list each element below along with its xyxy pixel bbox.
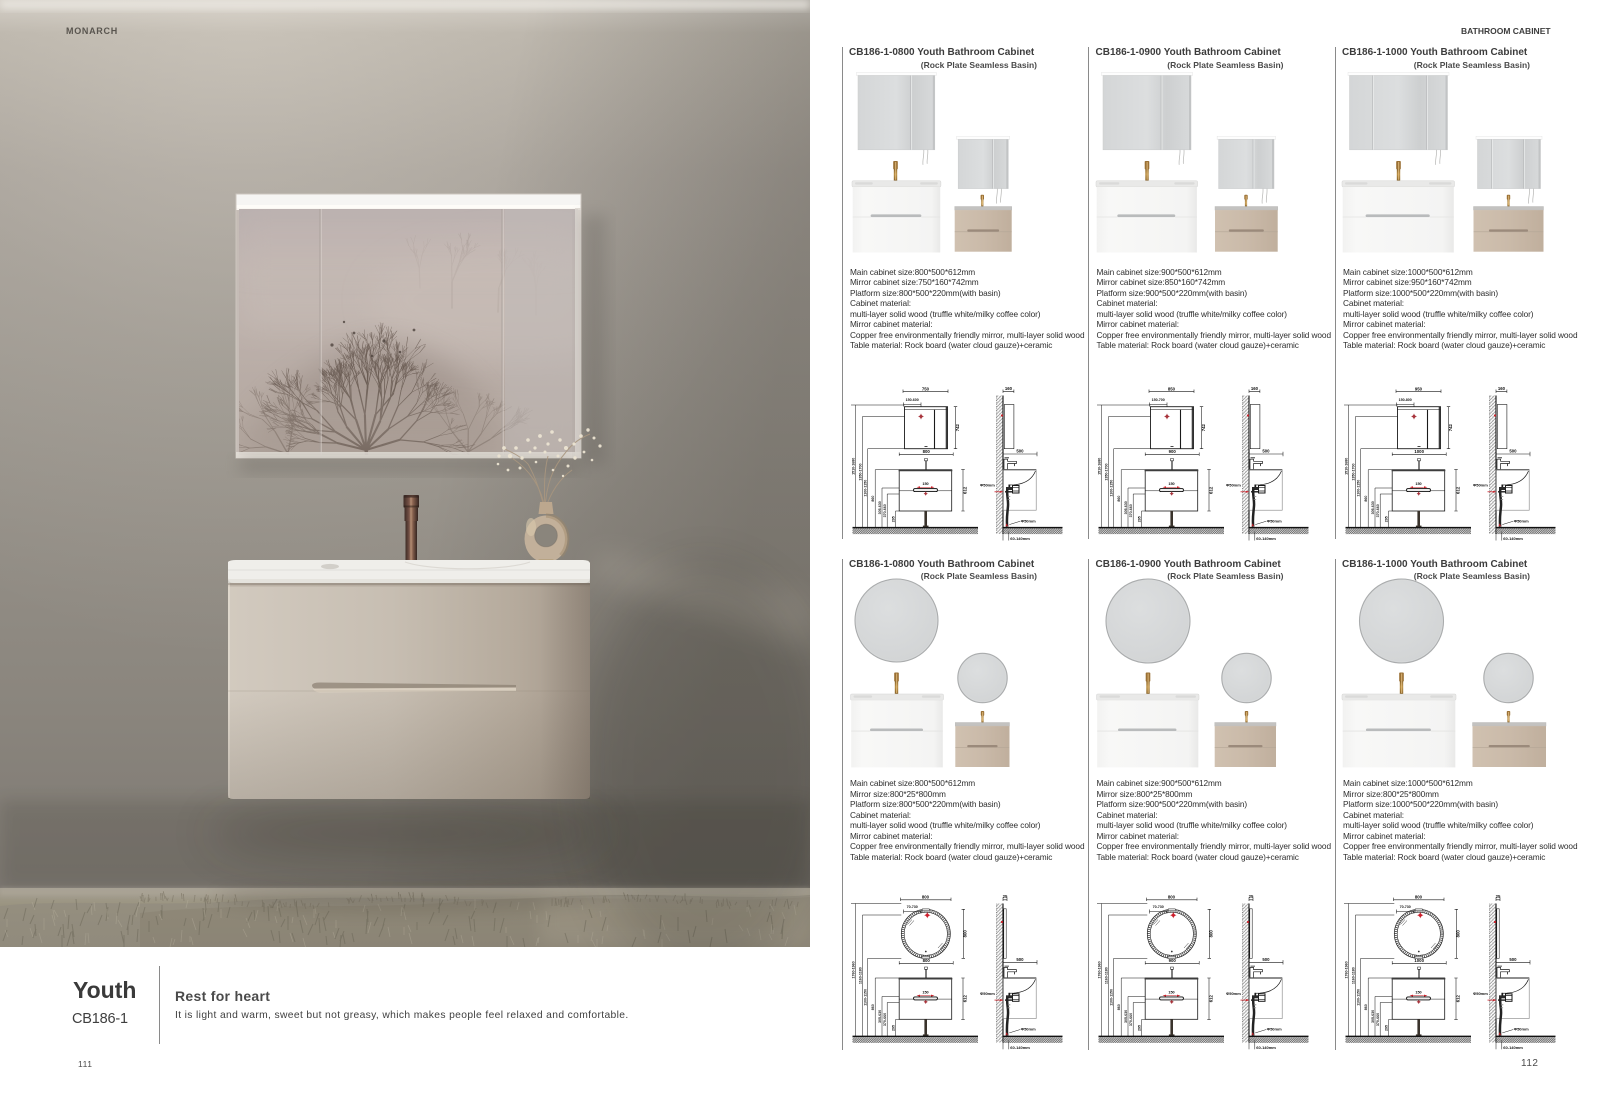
svg-text:800: 800: [1414, 895, 1422, 900]
svg-text:900: 900: [1169, 958, 1177, 963]
svg-text:150-700: 150-700: [1152, 398, 1165, 402]
svg-text:1000: 1000: [1414, 958, 1424, 963]
svg-text:800: 800: [921, 895, 929, 900]
svg-text:70-730: 70-730: [1153, 905, 1164, 909]
svg-text:750: 750: [921, 387, 929, 392]
svg-text:MONARCH: MONARCH: [66, 26, 118, 36]
svg-text:1000: 1000: [1414, 449, 1424, 454]
svg-text:70-730: 70-730: [1399, 905, 1410, 909]
svg-text:150-600: 150-600: [905, 398, 918, 402]
svg-text:150-800: 150-800: [1398, 398, 1411, 402]
svg-text:800: 800: [922, 958, 930, 963]
svg-text:850: 850: [1168, 387, 1176, 392]
svg-text:900: 900: [1169, 449, 1177, 454]
svg-text:800: 800: [1168, 895, 1176, 900]
svg-text:950: 950: [1414, 387, 1422, 392]
svg-text:800: 800: [922, 449, 930, 454]
svg-text:70-730: 70-730: [906, 905, 917, 909]
